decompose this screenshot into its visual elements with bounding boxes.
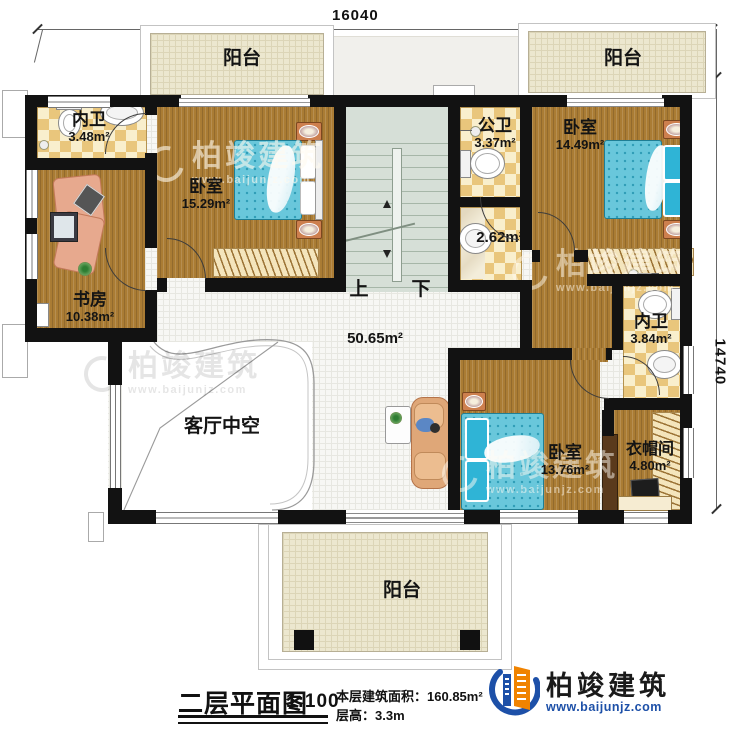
window xyxy=(624,512,668,524)
wall-segment xyxy=(108,488,122,512)
wall-segment xyxy=(157,278,167,292)
witness-line xyxy=(34,29,43,62)
pillow-icon xyxy=(465,460,489,502)
room-label-living-void: 客厅中空 xyxy=(184,416,260,438)
floor-area-note: 本层建筑面积：160.85m² xyxy=(336,686,483,705)
wardrobe-bedroom-right xyxy=(587,248,694,276)
wall-segment xyxy=(334,107,346,292)
wall-segment xyxy=(278,510,346,524)
person-head xyxy=(430,423,440,433)
wall-segment xyxy=(145,153,157,248)
title-underline xyxy=(178,715,328,718)
dresser-icon xyxy=(618,496,672,511)
wall-segment xyxy=(606,348,612,360)
sliding-door xyxy=(346,513,464,523)
balcony-post xyxy=(294,630,314,650)
room-label-bedroom-bottom: 卧室13.76m² xyxy=(541,443,589,477)
wall-segment xyxy=(578,510,624,524)
wall-segment xyxy=(602,410,614,436)
wall-segment xyxy=(157,95,181,107)
wall-segment xyxy=(108,340,122,385)
brand-name: 柏竣建筑 xyxy=(546,664,670,703)
plant-icon xyxy=(390,412,402,424)
title-underline xyxy=(178,722,328,724)
right-dimension-line xyxy=(716,78,717,510)
window xyxy=(156,512,278,524)
right-dimension-value: 14740 xyxy=(712,339,729,399)
wall-segment xyxy=(448,95,532,107)
wall-segment xyxy=(108,510,156,524)
nightstand-icon xyxy=(296,220,322,239)
wall-segment xyxy=(464,510,500,524)
window xyxy=(26,234,38,279)
floor-height-note: 层高：3.3m xyxy=(336,705,405,724)
witness-line xyxy=(716,29,717,78)
drawing-scale: 1:100 xyxy=(286,691,340,713)
room-label-balcony-bottom: 阳台 xyxy=(383,580,421,602)
floor-plan-canvas: 16040 14740 xyxy=(0,0,750,732)
window xyxy=(683,346,694,394)
stair-rail xyxy=(392,148,402,282)
window xyxy=(500,512,578,524)
brand-url: www.baijunjz.com xyxy=(546,700,662,714)
wall-segment xyxy=(145,107,157,115)
room-label-bath-top-left: 内卫3.48m² xyxy=(68,110,109,144)
wall-segment xyxy=(25,328,157,342)
wall-segment xyxy=(448,280,532,292)
wall-segment xyxy=(205,278,334,292)
balcony-post xyxy=(460,630,480,650)
stairs-down-label: 下 xyxy=(411,279,430,301)
wall-segment xyxy=(604,398,692,410)
wardrobe-bedroom-left xyxy=(213,248,319,277)
wall-segment xyxy=(532,250,540,262)
pillow-icon xyxy=(300,145,316,179)
window xyxy=(48,96,110,108)
room-label-bedroom-left: 卧室15.29m² xyxy=(182,177,230,211)
headboard xyxy=(315,140,323,220)
stair-arrow-down xyxy=(383,250,391,258)
sofa-cushion xyxy=(414,452,446,480)
computer-monitor-icon xyxy=(50,212,78,242)
wall-segment xyxy=(308,95,448,107)
wall-segment xyxy=(448,348,572,360)
window xyxy=(110,385,121,488)
wall-segment xyxy=(574,250,588,262)
pilaster xyxy=(88,512,104,542)
nightstand-icon xyxy=(462,392,486,411)
exterior-area xyxy=(20,342,108,514)
wall-segment xyxy=(145,290,157,340)
room-label-balcony-top-left: 阳台 xyxy=(223,48,261,70)
pillow-icon xyxy=(300,181,316,215)
window xyxy=(683,428,694,478)
room-label-bath-right: 内卫3.84m² xyxy=(630,312,671,346)
floor-drain-icon xyxy=(39,140,49,150)
roof-patch xyxy=(332,36,530,97)
stair-arrow-up xyxy=(383,200,391,208)
room-label-cloakroom: 衣帽间4.80m² xyxy=(626,441,674,474)
wall-segment xyxy=(612,286,623,350)
room-label-bedroom-right: 卧室14.49m² xyxy=(556,118,604,152)
top-dimension-value: 16040 xyxy=(332,7,379,24)
wall-segment xyxy=(25,158,157,170)
brand-logo-icon xyxy=(486,658,540,724)
room-label-balcony-top-right: 阳台 xyxy=(604,48,642,70)
sliding-door xyxy=(567,98,664,107)
room-label-public-bath: 公卫3.37m² xyxy=(474,116,515,150)
toilet-icon xyxy=(470,148,505,179)
wall-segment xyxy=(520,107,532,197)
wall-segment xyxy=(532,95,567,107)
sliding-door xyxy=(179,98,310,107)
wall-segment xyxy=(668,510,692,524)
nightstand-icon xyxy=(296,122,322,141)
wall-segment xyxy=(587,274,692,286)
wall-segment xyxy=(448,107,460,292)
wall-segment xyxy=(448,360,460,510)
room-label-study: 书房10.38m² xyxy=(66,290,114,324)
wall-segment xyxy=(520,197,532,250)
plant-icon xyxy=(78,262,92,276)
stairs-up-label: 上 xyxy=(349,279,368,301)
window xyxy=(26,170,38,218)
room-label-hall-area: 50.65m² xyxy=(347,330,403,347)
door-panel xyxy=(602,434,618,512)
